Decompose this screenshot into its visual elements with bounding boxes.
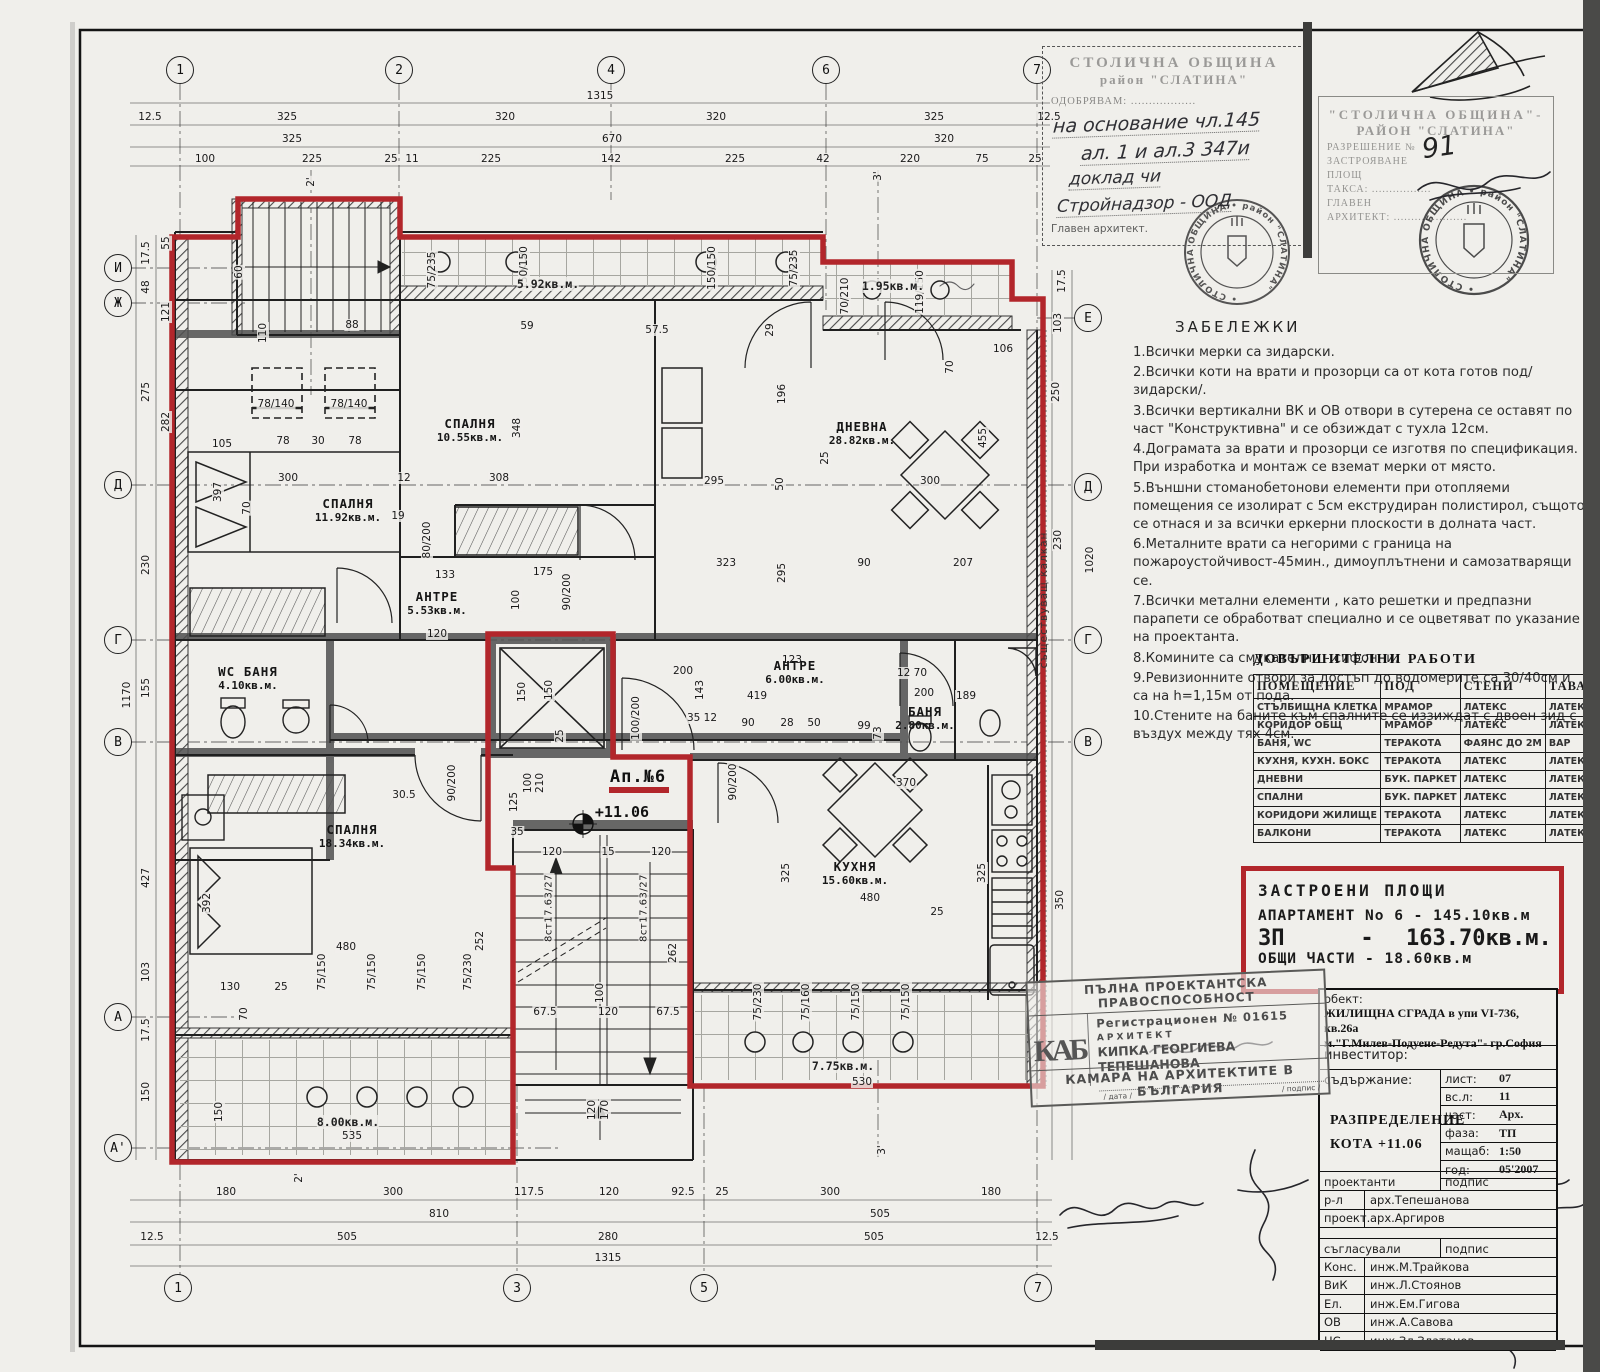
sheet-meta: лист:07вс.л:11част:Арх.фаза:ТПмащаб:1:50… [1440, 1070, 1556, 1171]
scan-band-top-divider [1303, 22, 1312, 258]
table-cell: ТЕРАКОТА [1381, 753, 1460, 771]
table-cell: ЛАТЕКС [1460, 789, 1545, 807]
person-name: инж.Л.Стоянов [1365, 1278, 1556, 1292]
level-elevation-label: +11.06 [595, 803, 649, 821]
stair-top-treads [245, 202, 390, 332]
table-cell: ЛАТЕКС [1460, 771, 1545, 789]
approvers-rows: Конс.инж.М.ТрайковаВиКинж.Л.СтояновЕл.ин… [1320, 1258, 1556, 1351]
table-cell: ЛАТЕКС [1460, 753, 1545, 771]
meta-label: лист: [1440, 1072, 1499, 1086]
permit-form-row: ГЛАВЕН [1327, 198, 1553, 209]
sheet-meta-row: вс.л:11 [1440, 1088, 1556, 1106]
table-cell: МРАМОР [1381, 717, 1460, 735]
zp-label: ЗП [1258, 926, 1328, 951]
table-cell: КОРИДОР ОБЩ [1254, 717, 1381, 735]
doors [330, 302, 953, 823]
table-cell: МРАМОР [1381, 699, 1460, 717]
apartment-area-line: АПАРТАМЕНТ No 6 - 145.10кв.м [1258, 908, 1559, 924]
object-line1: ЖИЛИЩНА СГРАДА в упи VI-736, кв.26а [1320, 1006, 1556, 1036]
person-role: р-л [1320, 1191, 1365, 1209]
signature-label: подпис [1440, 1171, 1556, 1191]
table-cell: БАНЯ, WC [1254, 735, 1381, 753]
level-symbol [569, 810, 597, 838]
finishing-works-title: ДОВЪРШИТЕЛНИ РАБОТИ [1253, 652, 1600, 668]
table-header-cell: СТЕНИ [1460, 675, 1545, 699]
meta-label: мащаб: [1440, 1144, 1499, 1158]
table-row: КОРИДОР ОБЩМРАМОРЛАТЕКСЛАТЕКС [1254, 717, 1600, 735]
person-role: Ел. [1320, 1295, 1365, 1313]
sheet-meta-row: лист:07 [1440, 1070, 1556, 1088]
existing-wall-note: съществуващ калкан [1038, 532, 1050, 669]
approval-stamp: СТОЛИЧНА ОБЩИНА район "СЛАТИНА" ОДОБРЯВА… [1042, 46, 1306, 246]
person-name: арх.Аргиров [1365, 1211, 1556, 1225]
note-item: 5.Външни стоманобетонови елементи при от… [1133, 480, 1585, 535]
furniture [188, 368, 998, 954]
meta-label: част: [1440, 1108, 1499, 1122]
meta-label: фаза: [1440, 1126, 1499, 1140]
table-cell: ЛАТЕКС [1460, 717, 1545, 735]
architect-certificate-stamp: ПЪЛНА ПРОЕКТАНТСКА ПРАВОСПОСОБНОСТ КАБ Р… [1025, 969, 1330, 1108]
table-header-cell: ПОМЕЩЕНИЕ [1254, 675, 1381, 699]
permit-stamp: "СТОЛИЧНА ОБЩИНА"- РАЙОН "СЛАТИНА" РАЗРЕ… [1318, 96, 1554, 274]
table-cell: ТЕРАКОТА [1381, 825, 1460, 843]
note-item: 2.Всички коти на врати и прозорци са от … [1133, 364, 1585, 400]
title-block: обект: ЖИЛИЩНА СГРАДА в упи VI-736, кв.2… [1318, 988, 1558, 1348]
content-label: съдържание: [1320, 1070, 1440, 1087]
table-cell: КОРИДОРИ ЖИЛИЩЕ [1254, 807, 1381, 825]
staircase [513, 835, 693, 1140]
apartment-number-tag: Ап.№6 [610, 767, 666, 787]
investor-label: инвеститор: [1320, 1046, 1556, 1063]
table-cell: БАЛКОНИ [1254, 825, 1381, 843]
table-cell: ТЕРАКОТА [1381, 807, 1460, 825]
table-cell: ФАЯНС ДО 2М [1460, 735, 1545, 753]
table-cell: БУК. ПАРКЕТ [1381, 789, 1460, 807]
designers-rows: р-ларх.Тепешановапроект.арх.Аргиров [1320, 1191, 1556, 1228]
table-header-cell: ПОД [1381, 675, 1460, 699]
stamp-org-line1: СТОЛИЧНА ОБЩИНА [1043, 55, 1305, 72]
note-item: 4.Дограмата за врати и прозорци се изгот… [1133, 441, 1585, 477]
table-cell: ЛАТЕКС [1460, 825, 1545, 843]
sheet-meta-row: мащаб:1:50 [1440, 1143, 1556, 1161]
approver-row: Ел.инж.Ем.Гигова [1320, 1295, 1556, 1314]
content-line1: РАЗПРЕДЕЛЕНИЕ [1330, 1113, 1440, 1129]
meta-label: вс.л: [1440, 1090, 1499, 1104]
person-name: арх.Тепешанова [1365, 1193, 1556, 1207]
designers-label: проектанти [1320, 1173, 1440, 1189]
sheet-meta-row: част:Арх. [1440, 1106, 1556, 1124]
zp-value: 163.70кв.м. [1406, 926, 1552, 951]
scan-band-right [1583, 0, 1600, 1372]
note-item: 1.Всички мерки са зидарски. [1133, 344, 1585, 362]
table-cell: КУХНЯ, КУХН. БОКС [1254, 753, 1381, 771]
table-cell: ТЕРАКОТА [1381, 735, 1460, 753]
signature-label2: подпис [1440, 1238, 1556, 1258]
table-cell: ЛАТЕКС [1460, 807, 1545, 825]
scan-band-bottom [1095, 1340, 1565, 1350]
areas-title: ЗАСТРОЕНИ ПЛОЩИ [1258, 881, 1559, 900]
table-cell: ЛАТЕКС [1460, 699, 1545, 717]
designer-row: р-ларх.Тепешанова [1320, 1191, 1556, 1210]
meta-value: ТП [1499, 1126, 1516, 1141]
table-row: СТЪЛБИЩНА КЛЕТКАМРАМОРЛАТЕКСЛАТЕКС [1254, 699, 1600, 717]
sheet-meta-row: фаза:ТП [1440, 1125, 1556, 1143]
person-role: ОВ [1320, 1314, 1365, 1332]
handwritten-line: ал. 1 и ал.3 347и [1080, 137, 1250, 166]
person-role: ВиК [1320, 1277, 1365, 1295]
object-label: обект: [1320, 990, 1556, 1006]
content-line2: КОТА +11.06 [1330, 1137, 1440, 1153]
zp-dash: - [1328, 926, 1406, 951]
note-item: 3.Всички вертикални ВК и ОВ отвори в сут… [1133, 403, 1585, 439]
approver-row: ОВинж.А.Савова [1320, 1314, 1556, 1333]
table-row: ДНЕВНИБУК. ПАРКЕТЛАТЕКСЛАТЕКС [1254, 771, 1600, 789]
apartment-tag-underline [609, 787, 669, 793]
handwritten-approval-lines: на основание чл.145ал. 1 и ал.3 347идокл… [1043, 112, 1305, 215]
approvers-label: съгласували [1320, 1240, 1440, 1256]
chief-architect-label: Главен архитект. [1051, 223, 1305, 235]
table-cell: СПАЛНИ [1254, 789, 1381, 807]
meta-value: 11 [1499, 1089, 1510, 1104]
table-row: КОРИДОРИ ЖИЛИЩЕТЕРАКОТАЛАТЕКСЛАТЕКС [1254, 807, 1600, 825]
table-cell: СТЪЛБИЩНА КЛЕТКА [1254, 699, 1381, 717]
approver-row: Конс.инж.М.Трайкова [1320, 1258, 1556, 1277]
table-row: БАНЯ, WCТЕРАКОТАФАЯНС ДО 2МВАР [1254, 735, 1600, 753]
finishing-works-block: ДОВЪРШИТЕЛНИ РАБОТИ ПОМЕЩЕНИЕПОДСТЕНИТАВ… [1253, 652, 1600, 843]
person-role: проект. [1320, 1210, 1365, 1228]
table-row: КУХНЯ, КУХН. БОКСТЕРАКОТАЛАТЕКСЛАТЕКС [1254, 753, 1600, 771]
approve-label: ОДОБРЯВАМ: .................. [1051, 96, 1305, 107]
permit-form-row: ТАКСА: ................. [1327, 184, 1553, 195]
common-parts-line: ОБЩИ ЧАСТИ - 18.60кв.м [1258, 951, 1559, 967]
person-name: инж.А.Савова [1365, 1315, 1556, 1329]
note-item: 7.Всички метални елементи , като решетки… [1133, 593, 1585, 648]
finishing-works-table: ПОМЕЩЕНИЕПОДСТЕНИТАВАН СТЪЛБИЩНА КЛЕТКАМ… [1253, 674, 1600, 843]
person-name: инж.Ем.Гигова [1365, 1297, 1556, 1311]
roof-window-boxes [252, 368, 375, 418]
table-row: СПАЛНИБУК. ПАРКЕТЛАТЕКСЛАТЕКС [1254, 789, 1600, 807]
glider-logo-sketch [1412, 32, 1545, 100]
stamp-org-line2: район "СЛАТИНА" [1043, 72, 1305, 88]
handwritten-number: 91 [1420, 130, 1458, 165]
table-row: БАЛКОНИТЕРАКОТАЛАТЕКСЛАТЕКС [1254, 825, 1600, 843]
handwritten-line: на основание чл.145 [1052, 108, 1261, 138]
table-cell: БУК. ПАРКЕТ [1381, 771, 1460, 789]
handwritten-line: доклад чи [1068, 166, 1161, 190]
handwritten-line: Стройнадзор - ООД [1056, 191, 1232, 218]
notes-title: ЗАБЕЛЕЖКИ [1175, 318, 1585, 336]
zp-line: ЗП - 163.70кв.м. [1258, 926, 1559, 951]
permit-form-row: ПЛОЩ [1327, 170, 1553, 181]
meta-value: 1:50 [1499, 1144, 1521, 1159]
note-item: 6.Металните врати са негорими с граница … [1133, 536, 1585, 591]
person-name: инж.М.Трайкова [1365, 1260, 1556, 1274]
person-role: Конс. [1320, 1258, 1365, 1276]
balcony-columns [307, 252, 949, 1107]
permit-form-row: АРХИТЕКТ: ..................... [1327, 212, 1553, 223]
table-cell: ДНЕВНИ [1254, 771, 1381, 789]
meta-value: Арх. [1499, 1107, 1523, 1122]
scanned-floor-plan-sheet: • СТОЛИЧНА ОБЩИНА • район "СЛАТИНА" • СТ… [0, 0, 1600, 1372]
meta-value: 07 [1499, 1071, 1511, 1086]
approver-row: ВиКинж.Л.Стоянов [1320, 1277, 1556, 1296]
permit-org-line1: "СТОЛИЧНА ОБЩИНА"- [1319, 107, 1553, 123]
